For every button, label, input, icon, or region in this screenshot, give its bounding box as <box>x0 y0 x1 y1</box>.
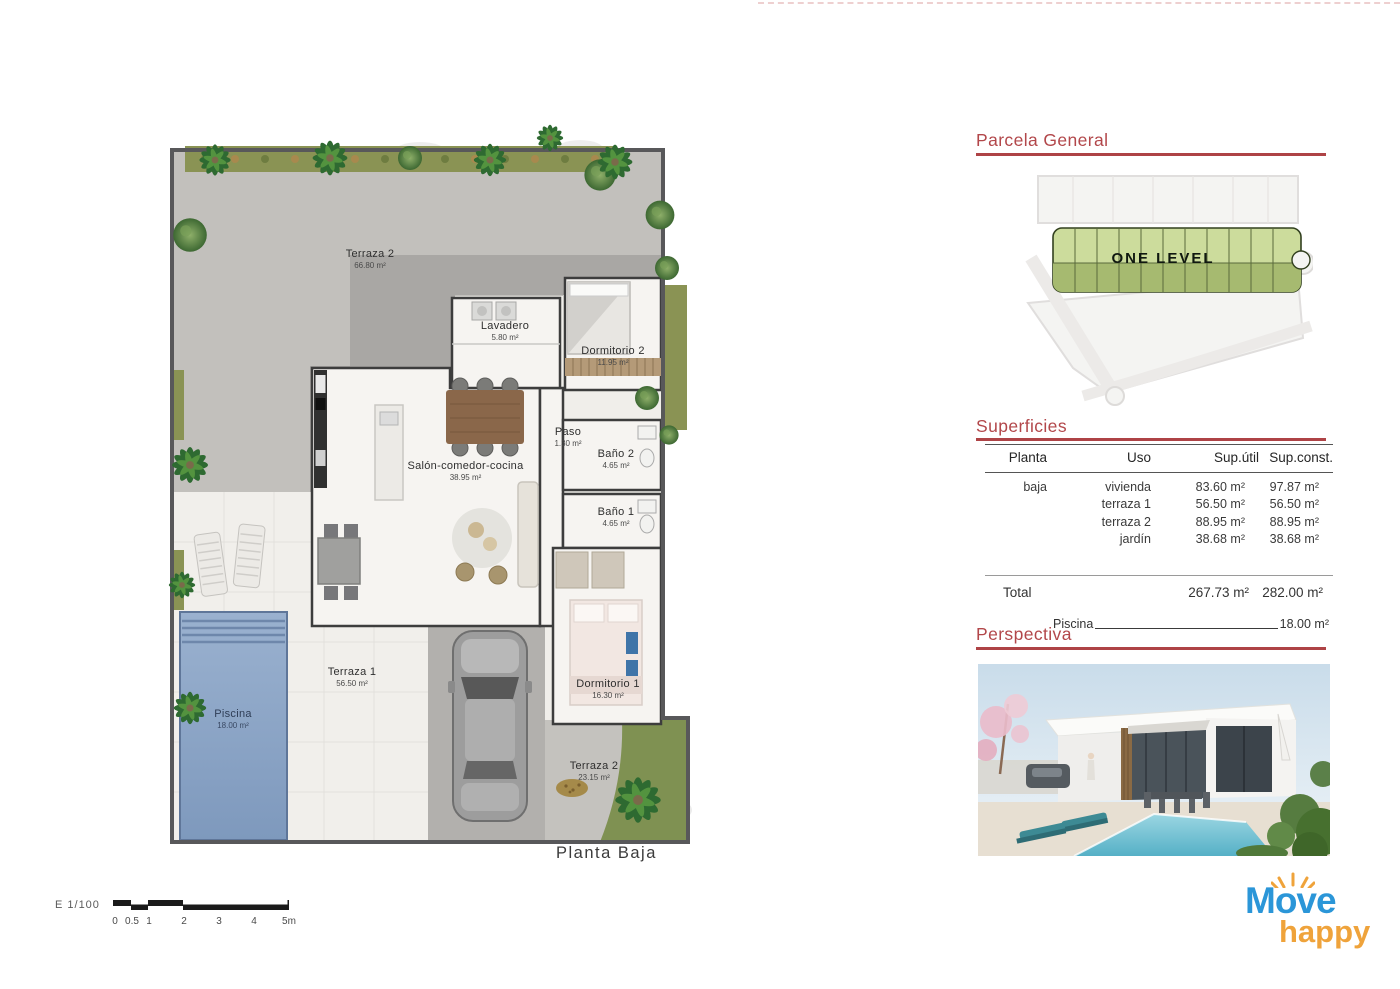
scale-tick: 0.5 <box>125 916 139 927</box>
cell: baja <box>985 479 1047 497</box>
scale-tick: 3 <box>216 916 222 927</box>
villa-render <box>978 664 1330 856</box>
scale-tick: 0 <box>112 916 118 927</box>
superficies-table: Planta Uso Sup.útil Sup.const. baja vivi… <box>985 444 1333 631</box>
col-sup-const: Sup.const. <box>1259 445 1333 472</box>
perspectiva-heading: Perspectiva <box>976 624 1072 645</box>
scale-bar-graphic <box>113 900 291 914</box>
scale-ratio-label: E 1/100 <box>55 899 100 911</box>
move-happy-logo: Move happy <box>1243 872 1393 972</box>
col-sup-util: Sup.útil <box>1151 445 1259 472</box>
parcela-heading-rule <box>976 153 1326 156</box>
siteplan-graphic <box>1013 168 1313 408</box>
piscina-leader-line <box>1095 628 1277 629</box>
scale-ticks: 0 0.5 1 2 3 4 5m <box>113 916 303 930</box>
scale-tick: 5m <box>282 916 296 927</box>
scale-tick: 2 <box>181 916 187 927</box>
piscina-value: 18.00 m² <box>1280 617 1329 631</box>
cell: 83.60 m² <box>1151 479 1259 497</box>
top-dashed-divider <box>758 2 1400 4</box>
total-util: 267.73 m² <box>1151 583 1259 603</box>
superficies-table-header: Planta Uso Sup.útil Sup.const. <box>985 444 1333 473</box>
cell: 38.68 m² <box>1151 531 1259 549</box>
cell: terraza 1 <box>1047 496 1151 514</box>
superficies-heading: Superficies <box>976 416 1067 437</box>
floor-plan-graphic <box>160 120 700 870</box>
parcela-heading: Parcela General <box>976 130 1108 151</box>
siteplan-plot-label: ONE LEVEL <box>1013 250 1313 267</box>
cell: terraza 2 <box>1047 514 1151 532</box>
cell: 88.95 m² <box>1259 514 1333 532</box>
cell: vivienda <box>1047 479 1151 497</box>
scale-tick: 1 <box>146 916 152 927</box>
col-uso: Uso <box>1047 445 1151 472</box>
total-const: 282.00 m² <box>1259 583 1333 603</box>
cell: 88.95 m² <box>1151 514 1259 532</box>
total-label: Total <box>985 583 1047 603</box>
col-planta: Planta <box>985 445 1047 472</box>
piscina-row: Piscina 18.00 m² <box>1053 617 1329 631</box>
cell: jardín <box>1047 531 1151 549</box>
cell <box>985 496 1047 514</box>
superficies-heading-rule <box>976 438 1326 441</box>
cell <box>985 531 1047 549</box>
plan-caption: Planta Baja <box>556 844 706 863</box>
scale-tick: 4 <box>251 916 257 927</box>
perspectiva-heading-rule <box>976 647 1326 650</box>
logo-word-happy: happy <box>1279 914 1370 950</box>
cell: 97.87 m² <box>1259 479 1333 497</box>
superficies-table-body: baja vivienda 83.60 m² 97.87 m² terraza … <box>985 473 1333 549</box>
superficies-total-row: Total 267.73 m² 282.00 m² <box>985 576 1333 603</box>
cell <box>985 514 1047 532</box>
cell: 38.68 m² <box>1259 531 1333 549</box>
siteplan: ONE LEVEL <box>1013 168 1313 408</box>
cell: 56.50 m² <box>1151 496 1259 514</box>
brochure-page: Terraza 2 66.80 m² Lavadero 5.80 m² Dorm… <box>0 0 1400 989</box>
cell: 56.50 m² <box>1259 496 1333 514</box>
